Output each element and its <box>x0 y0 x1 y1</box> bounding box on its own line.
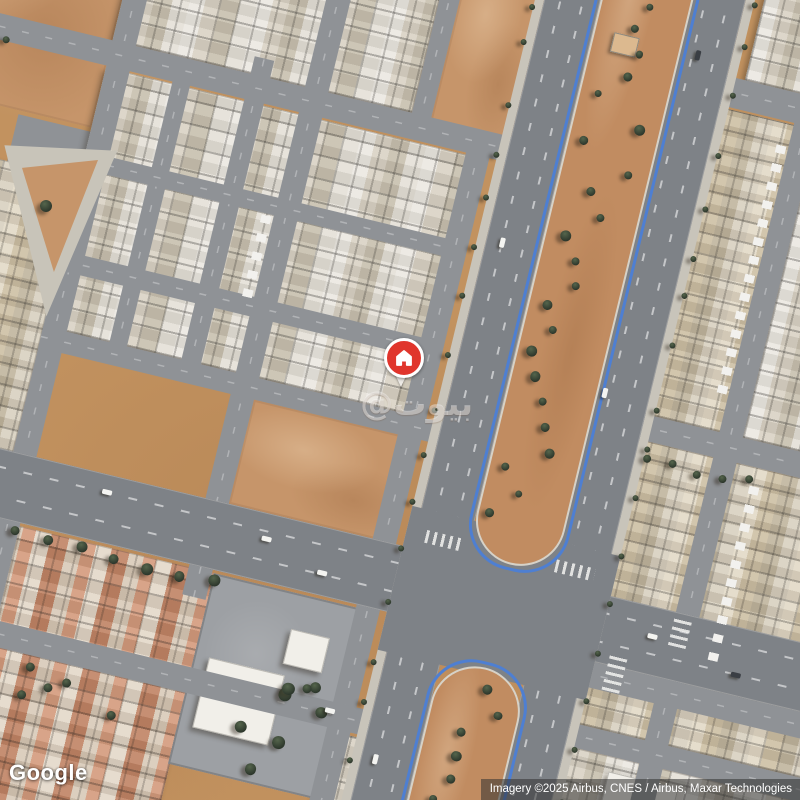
triangle-plaza <box>2 138 122 320</box>
property-pin[interactable] <box>381 338 421 392</box>
satellite-map[interactable]: بيوت@ Google Imagery ©2025 Airbus, CNES … <box>0 0 800 800</box>
attribution-bar: Imagery ©2025 Airbus, CNES / Airbus, Max… <box>481 779 800 800</box>
attribution-text: Imagery ©2025 Airbus, CNES / Airbus, Max… <box>490 779 792 800</box>
google-logo[interactable]: Google <box>9 760 88 786</box>
house-icon <box>394 348 414 368</box>
tree-icon <box>40 200 52 212</box>
tree-icon <box>741 43 748 50</box>
pin-disc <box>384 338 424 378</box>
